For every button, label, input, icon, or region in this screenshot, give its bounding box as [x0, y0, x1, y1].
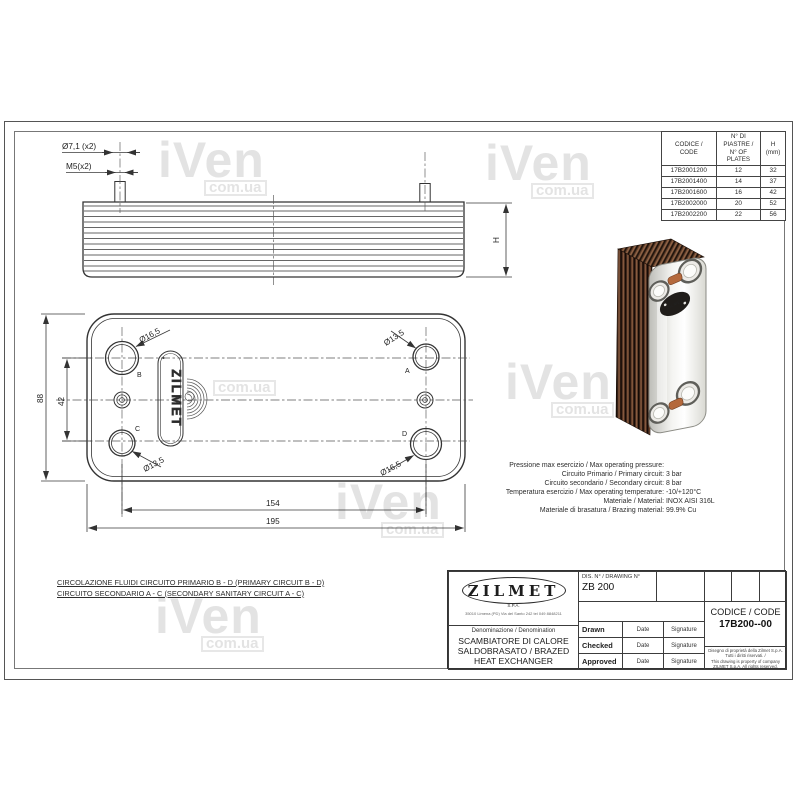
- zilmet-logo-sub: S.P.A.: [449, 603, 578, 608]
- port-a-label: A: [405, 368, 410, 375]
- spec-line: Circuito secondario / Secondary circuit:…: [418, 480, 718, 489]
- copyright-it: Disegno di proprietà della Zilmet S.p.A.…: [707, 648, 784, 659]
- dia-bottom-left-label: Ø13,5: [142, 455, 166, 474]
- parts-table-header-row: CODICE / CODE N° DI PIASTRE / N° OF PLAT…: [662, 132, 786, 166]
- title-block: ZILMET S.P.A. 35010 Limena (PD) Via del …: [447, 570, 786, 669]
- spec-value: -10/+120°C: [664, 489, 718, 498]
- spec-label: Materiale / Material:: [418, 498, 664, 507]
- dia-top-right-label: Ø13,5: [382, 328, 406, 348]
- empty-cell: [578, 601, 705, 622]
- dim-height-label: H: [492, 237, 501, 243]
- col-height-l1: H: [771, 141, 775, 148]
- side-view: Ø7,1 (x2) M5(x2) H: [62, 142, 512, 285]
- cell-plates: 12: [716, 166, 761, 177]
- col-height-l2: (mm): [766, 149, 780, 156]
- cell-height: 42: [761, 188, 786, 199]
- code-label: CODICE / CODE: [705, 607, 786, 617]
- circulation-note: CIRCOLAZIONE FLUIDI CIRCUITO PRIMARIO B …: [57, 578, 324, 599]
- drawing-no-cell: DIS. N° / DRAWING N° ZB 200: [578, 571, 657, 602]
- parts-table: CODICE / CODE N° DI PIASTRE / N° OF PLAT…: [661, 131, 786, 221]
- cell-code: 17B2002200: [662, 210, 717, 221]
- cell-plates: 20: [716, 199, 761, 210]
- spec-line: Circuito Primario / Primary circuit: 3 b…: [418, 471, 718, 480]
- cell-code: 17B2001200: [662, 166, 717, 177]
- empty-cell: [759, 571, 787, 602]
- approved-signature-cell: Signature: [663, 653, 705, 670]
- cell-height: 37: [761, 177, 786, 188]
- embossed-arcs: [185, 379, 207, 419]
- drawn-signature-cell: Signature: [663, 621, 705, 638]
- table-row: 17B2001600 16 42: [662, 188, 786, 199]
- spec-value: 99.9% Cu: [664, 507, 718, 516]
- spec-label: Circuito Primario / Primary circuit:: [418, 471, 664, 480]
- drawing-no-value: ZB 200: [582, 582, 653, 593]
- spec-value: 8 bar: [664, 480, 718, 489]
- table-row: 17B2002200 22 56: [662, 210, 786, 221]
- dia-bottom-right-label: Ø16,5: [379, 459, 403, 478]
- spec-line: Materiale / Material: INOX AISI 316L: [418, 498, 718, 507]
- spec-line: Pressione max esercizio / Max operating …: [418, 462, 718, 471]
- zilmet-logo: ZILMET: [462, 577, 566, 604]
- dim-154-label: 154: [266, 499, 280, 508]
- cell-code: 17B2001400: [662, 177, 717, 188]
- drawn-cell: Drawn: [578, 621, 623, 638]
- dim-thread-label: M5(x2): [66, 162, 92, 171]
- spec-label: Circuito secondario / Secondary circuit:: [418, 480, 664, 489]
- cell-code: 17B2001600: [662, 188, 717, 199]
- zilmet-address: 35010 Limena (PD) Via del Santo 242 tel …: [449, 611, 578, 616]
- spec-value: [664, 462, 718, 471]
- drawing-canvas: Ø7,1 (x2) M5(x2) H: [0, 0, 800, 800]
- spec-value: 3 bar: [664, 471, 718, 480]
- photo-front-face: ZILMET: [649, 256, 706, 435]
- operating-specs: Pressione max esercizio / Max operating …: [418, 462, 718, 516]
- spec-line: Materiale di brasatura / Brazing materia…: [418, 507, 718, 516]
- table-row: 17B2002000 20 52: [662, 199, 786, 210]
- checked-cell: Checked: [578, 637, 623, 654]
- port-b-label: B: [137, 372, 142, 379]
- front-view: ZILMET B A C D Ø16,5 Ø13,5 Ø1: [36, 314, 473, 532]
- empty-cell: [656, 571, 705, 602]
- drawing-sheet: iVen com.ua: [0, 0, 800, 800]
- cell-code: 17B2002000: [662, 199, 717, 210]
- dim-195-label: 195: [266, 517, 280, 526]
- col-height: H (mm): [761, 132, 786, 166]
- col-plates: N° DI PIASTRE / N° OF PLATES: [716, 132, 761, 166]
- spec-label: Materiale di brasatura / Brazing materia…: [418, 507, 664, 516]
- photo-plate-stack-side: [616, 249, 652, 435]
- logo-cell: ZILMET S.P.A. 35010 Limena (PD) Via del …: [448, 571, 579, 626]
- col-code: CODICE / CODE: [662, 132, 717, 166]
- col-code-l2: CODE: [680, 149, 698, 156]
- dim-88-label: 88: [36, 393, 45, 403]
- cell-height: 32: [761, 166, 786, 177]
- col-plates-l1: N° DI PIASTRE /: [723, 133, 753, 148]
- port-c-label: C: [135, 426, 140, 433]
- col-plates-l2: N° OF PLATES: [727, 149, 750, 164]
- code-value: 17B200--00: [705, 619, 786, 630]
- copyright-cell: Disegno di proprietà della Zilmet S.p.A.…: [704, 646, 787, 670]
- table-row: 17B2001400 14 37: [662, 177, 786, 188]
- spec-line: Temperatura esercizio / Max operating te…: [418, 489, 718, 498]
- spec-value: INOX AISI 316L: [664, 498, 718, 507]
- denomination-cell: Denominazione / Denomination SCAMBIATORE…: [448, 625, 579, 670]
- embossed-logo: ZILMET: [158, 351, 183, 446]
- cell-plates: 16: [716, 188, 761, 199]
- checked-date-cell: Date: [622, 637, 664, 654]
- circulation-note-line2: CIRCUITO SECONDARIO A - C (SECONDARY SAN…: [57, 589, 324, 600]
- cell-plates: 22: [716, 210, 761, 221]
- drawn-date-cell: Date: [622, 621, 664, 638]
- denomination-label: Denominazione / Denomination: [449, 628, 578, 634]
- denomination-text: SCAMBIATORE DI CALORE SALDOBRASATO / BRA…: [449, 636, 578, 666]
- copyright-en: This drawing is property of company ZILM…: [707, 659, 784, 670]
- cell-height: 56: [761, 210, 786, 221]
- dia-top-left-label: Ø16,5: [138, 326, 162, 345]
- port-d-label: D: [402, 431, 407, 438]
- approved-date-cell: Date: [622, 653, 664, 670]
- dim-hole-label: Ø7,1 (x2): [62, 142, 96, 151]
- spec-label: Pressione max esercizio / Max operating …: [418, 462, 664, 471]
- approved-cell: Approved: [578, 653, 623, 670]
- zilmet-logo-text: ZILMET: [468, 582, 560, 600]
- checked-signature-cell: Signature: [663, 637, 705, 654]
- dim-42-label: 42: [57, 396, 66, 406]
- drawing-no-label: DIS. N° / DRAWING N°: [582, 574, 653, 580]
- cell-plates: 14: [716, 177, 761, 188]
- col-code-l1: CODICE /: [675, 141, 703, 148]
- code-cell: CODICE / CODE 17B200--00: [704, 601, 787, 647]
- embossed-logo-text: ZILMET: [169, 369, 183, 427]
- empty-cell: [704, 571, 732, 602]
- empty-cell: [731, 571, 760, 602]
- circulation-note-line1: CIRCOLAZIONE FLUIDI CIRCUITO PRIMARIO B …: [57, 578, 324, 589]
- table-row: 17B2001200 12 32: [662, 166, 786, 177]
- heat-exchanger-photo: ZILMET: [616, 239, 706, 435]
- spec-label: Temperatura esercizio / Max operating te…: [418, 489, 664, 498]
- cell-height: 52: [761, 199, 786, 210]
